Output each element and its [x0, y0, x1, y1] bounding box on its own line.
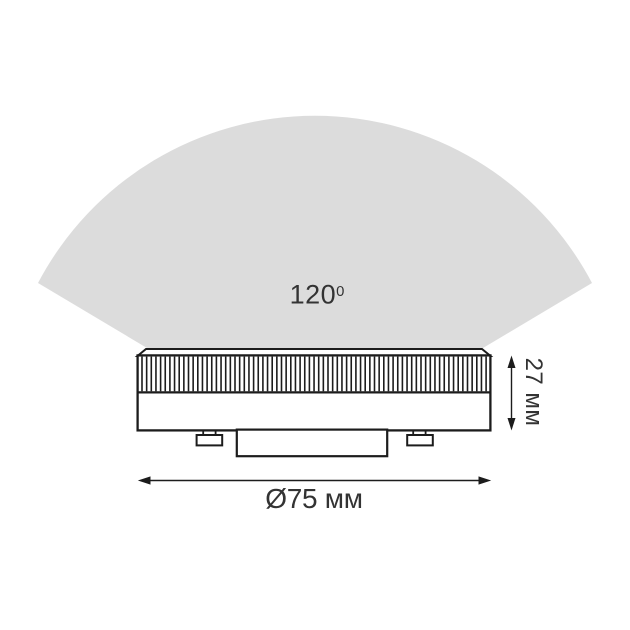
- height-dimension-label: 27 мм: [521, 358, 545, 427]
- width-dimension-arrow-left-icon: [138, 476, 151, 484]
- diagram-drawing: [0, 0, 630, 630]
- diffuser-ribs: [142, 357, 486, 392]
- height-dimension-arrow-down-icon: [508, 418, 516, 431]
- beam-angle-superscript: 0: [336, 284, 344, 300]
- height-dimension-arrow-up-icon: [508, 356, 516, 369]
- width-dimension-arrow-right-icon: [479, 476, 492, 484]
- beam-angle-value: 120: [290, 280, 337, 310]
- lamp-dimension-diagram: 1200 27 мм Ø75 мм: [0, 0, 630, 630]
- beam-angle-label: 1200: [290, 282, 345, 309]
- beam-angle-fan: [38, 116, 592, 348]
- gx53-pin-left-cap: [197, 435, 223, 445]
- gx53-pin-right-cap: [407, 435, 433, 445]
- width-dimension-label: Ø75 мм: [265, 485, 362, 513]
- lamp-base-box: [237, 430, 387, 457]
